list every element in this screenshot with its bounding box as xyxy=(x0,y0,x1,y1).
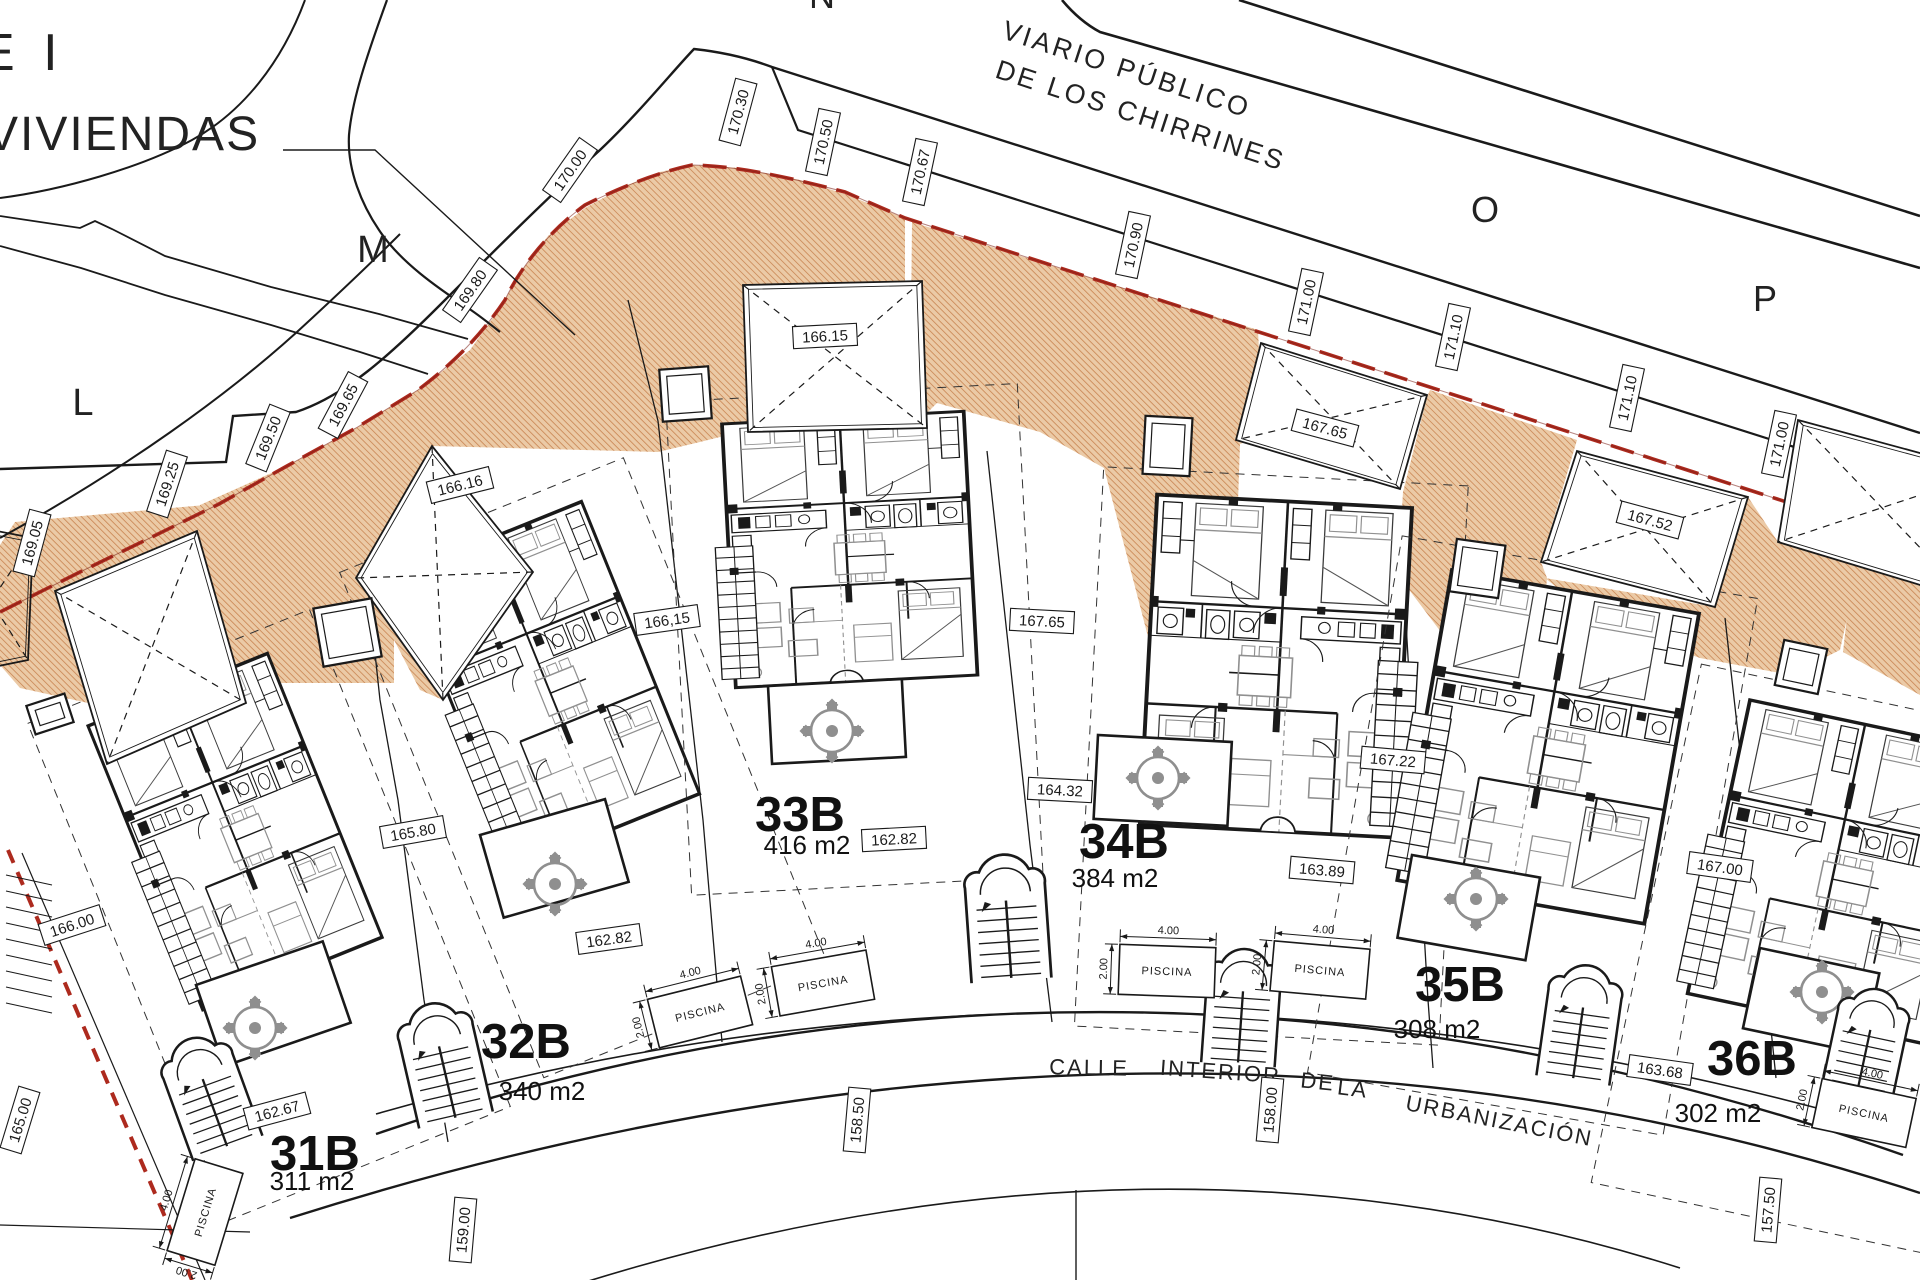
svg-text:35B: 35B xyxy=(1415,958,1505,1012)
svg-text:166.15: 166.15 xyxy=(802,327,849,346)
svg-text:308 m2: 308 m2 xyxy=(1394,1014,1481,1044)
svg-text:164.32: 164.32 xyxy=(1037,781,1084,800)
svg-text:DE: DE xyxy=(1299,1067,1336,1095)
svg-text:416 m2: 416 m2 xyxy=(764,830,851,860)
svg-text:L: L xyxy=(72,382,93,424)
svg-text:O: O xyxy=(1471,189,1499,230)
svg-text:36B: 36B xyxy=(1707,1032,1797,1086)
svg-text:E I: E I xyxy=(0,24,65,82)
svg-text:302 m2: 302 m2 xyxy=(1675,1098,1762,1128)
svg-text:M: M xyxy=(357,229,389,271)
svg-text:LA: LA xyxy=(1336,1074,1370,1103)
svg-text:CALLE: CALLE xyxy=(1049,1054,1129,1080)
svg-text:311 m2: 311 m2 xyxy=(270,1166,355,1196)
svg-text:340 m2: 340 m2 xyxy=(499,1076,586,1106)
svg-text:N: N xyxy=(809,0,835,16)
svg-text:P: P xyxy=(1753,278,1777,319)
svg-text:384 m2: 384 m2 xyxy=(1072,863,1159,893)
svg-text:162.82: 162.82 xyxy=(871,830,918,849)
svg-text:167.65: 167.65 xyxy=(1019,612,1066,631)
svg-text:VIVIENDAS: VIVIENDAS xyxy=(0,108,260,161)
svg-text:34B: 34B xyxy=(1079,815,1169,869)
svg-text:32B: 32B xyxy=(481,1015,571,1069)
